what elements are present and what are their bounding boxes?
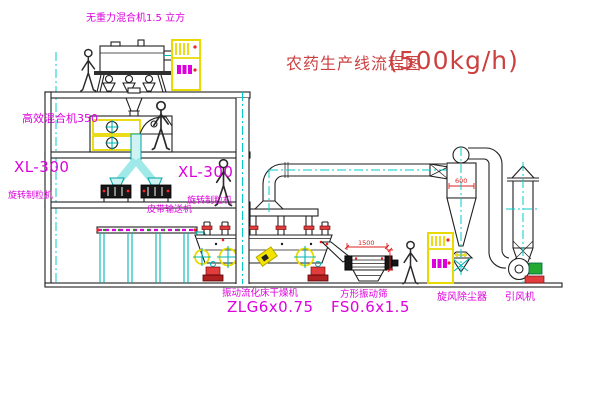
- worker-ground: [403, 241, 418, 283]
- label-fan: 引风机: [505, 293, 535, 303]
- dryer-exhaust-duct: [255, 162, 461, 212]
- rotary-granulator-right: [141, 185, 171, 202]
- rotary-granulator-left: [101, 185, 131, 202]
- fluid-bed-dryer: [193, 209, 332, 281]
- label-sieve-model: FS0.6x1.5: [331, 300, 410, 315]
- label-granulator-right-model: XL-300: [178, 165, 233, 180]
- high-efficiency-mixer: [90, 116, 172, 185]
- label-granulator-right-name: 旋转制粒机: [187, 197, 232, 206]
- label-granulator-left-name: 旋转制粒机: [8, 192, 53, 201]
- label-cyclone: 旋风除尘器: [437, 293, 487, 303]
- label-gravity-free-mixer: 无重力混合机1.5 立方: [86, 14, 185, 24]
- page-title-capacity: (500kg/h): [388, 48, 519, 73]
- label-granulator-left-model: XL-300: [14, 160, 69, 175]
- control-cabinet-top: [172, 40, 200, 90]
- fan-motor: [529, 263, 542, 274]
- dimension-sieve-length: 1500: [358, 240, 375, 247]
- ground-line: [45, 283, 562, 287]
- label-dryer-model: ZLG6x0.75: [227, 300, 314, 315]
- worker-roof: [81, 49, 96, 90]
- label-belt-conveyor: 皮带输送机: [147, 206, 192, 215]
- dimension-cyclone-diameter: 600: [455, 178, 467, 185]
- label-high-efficiency-mixer: 高效混合机350: [22, 113, 98, 124]
- induced-draft-fan: [509, 259, 545, 284]
- control-cabinet-bottom: [428, 233, 453, 283]
- building-column: [236, 92, 249, 284]
- vibrating-sieve: [345, 243, 398, 281]
- process-flow-diagram: 无重力混合机1.5 立方 农药生产线流程图 (500kg/h) 高效混合机350…: [0, 0, 600, 403]
